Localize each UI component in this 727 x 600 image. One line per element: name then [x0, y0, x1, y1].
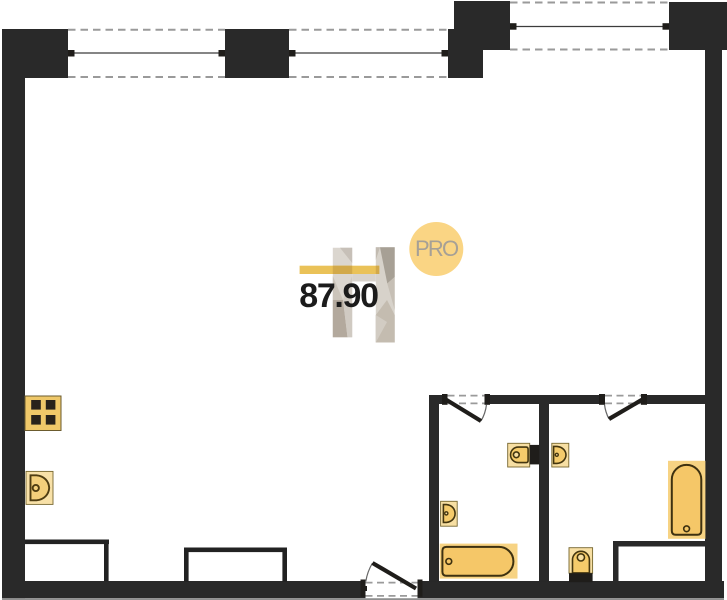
svg-text:PRO: PRO	[415, 236, 459, 261]
svg-text:87.90: 87.90	[299, 277, 378, 315]
